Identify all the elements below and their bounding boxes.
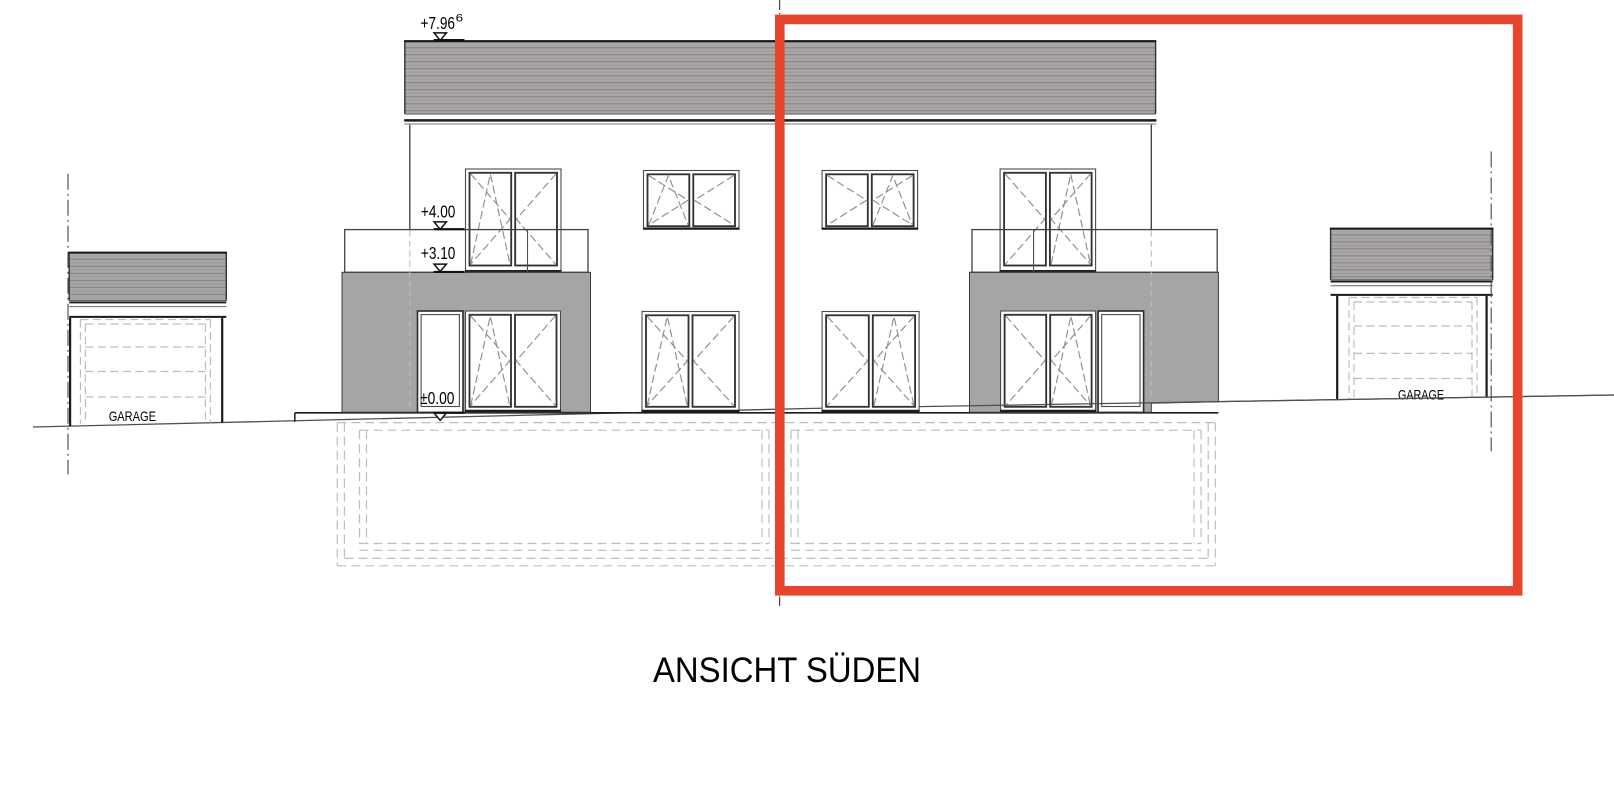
svg-text:+3.10: +3.10	[421, 243, 456, 263]
svg-text:ANSICHT SÜDEN: ANSICHT SÜDEN	[653, 651, 921, 690]
svg-text:±0.00: ±0.00	[420, 388, 455, 408]
svg-text:+4.00: +4.00	[421, 202, 456, 222]
svg-text:GARAGE: GARAGE	[1398, 387, 1444, 403]
svg-text:6: 6	[456, 13, 464, 25]
svg-text:+7.96: +7.96	[421, 13, 456, 33]
svg-text:GARAGE: GARAGE	[109, 408, 156, 424]
